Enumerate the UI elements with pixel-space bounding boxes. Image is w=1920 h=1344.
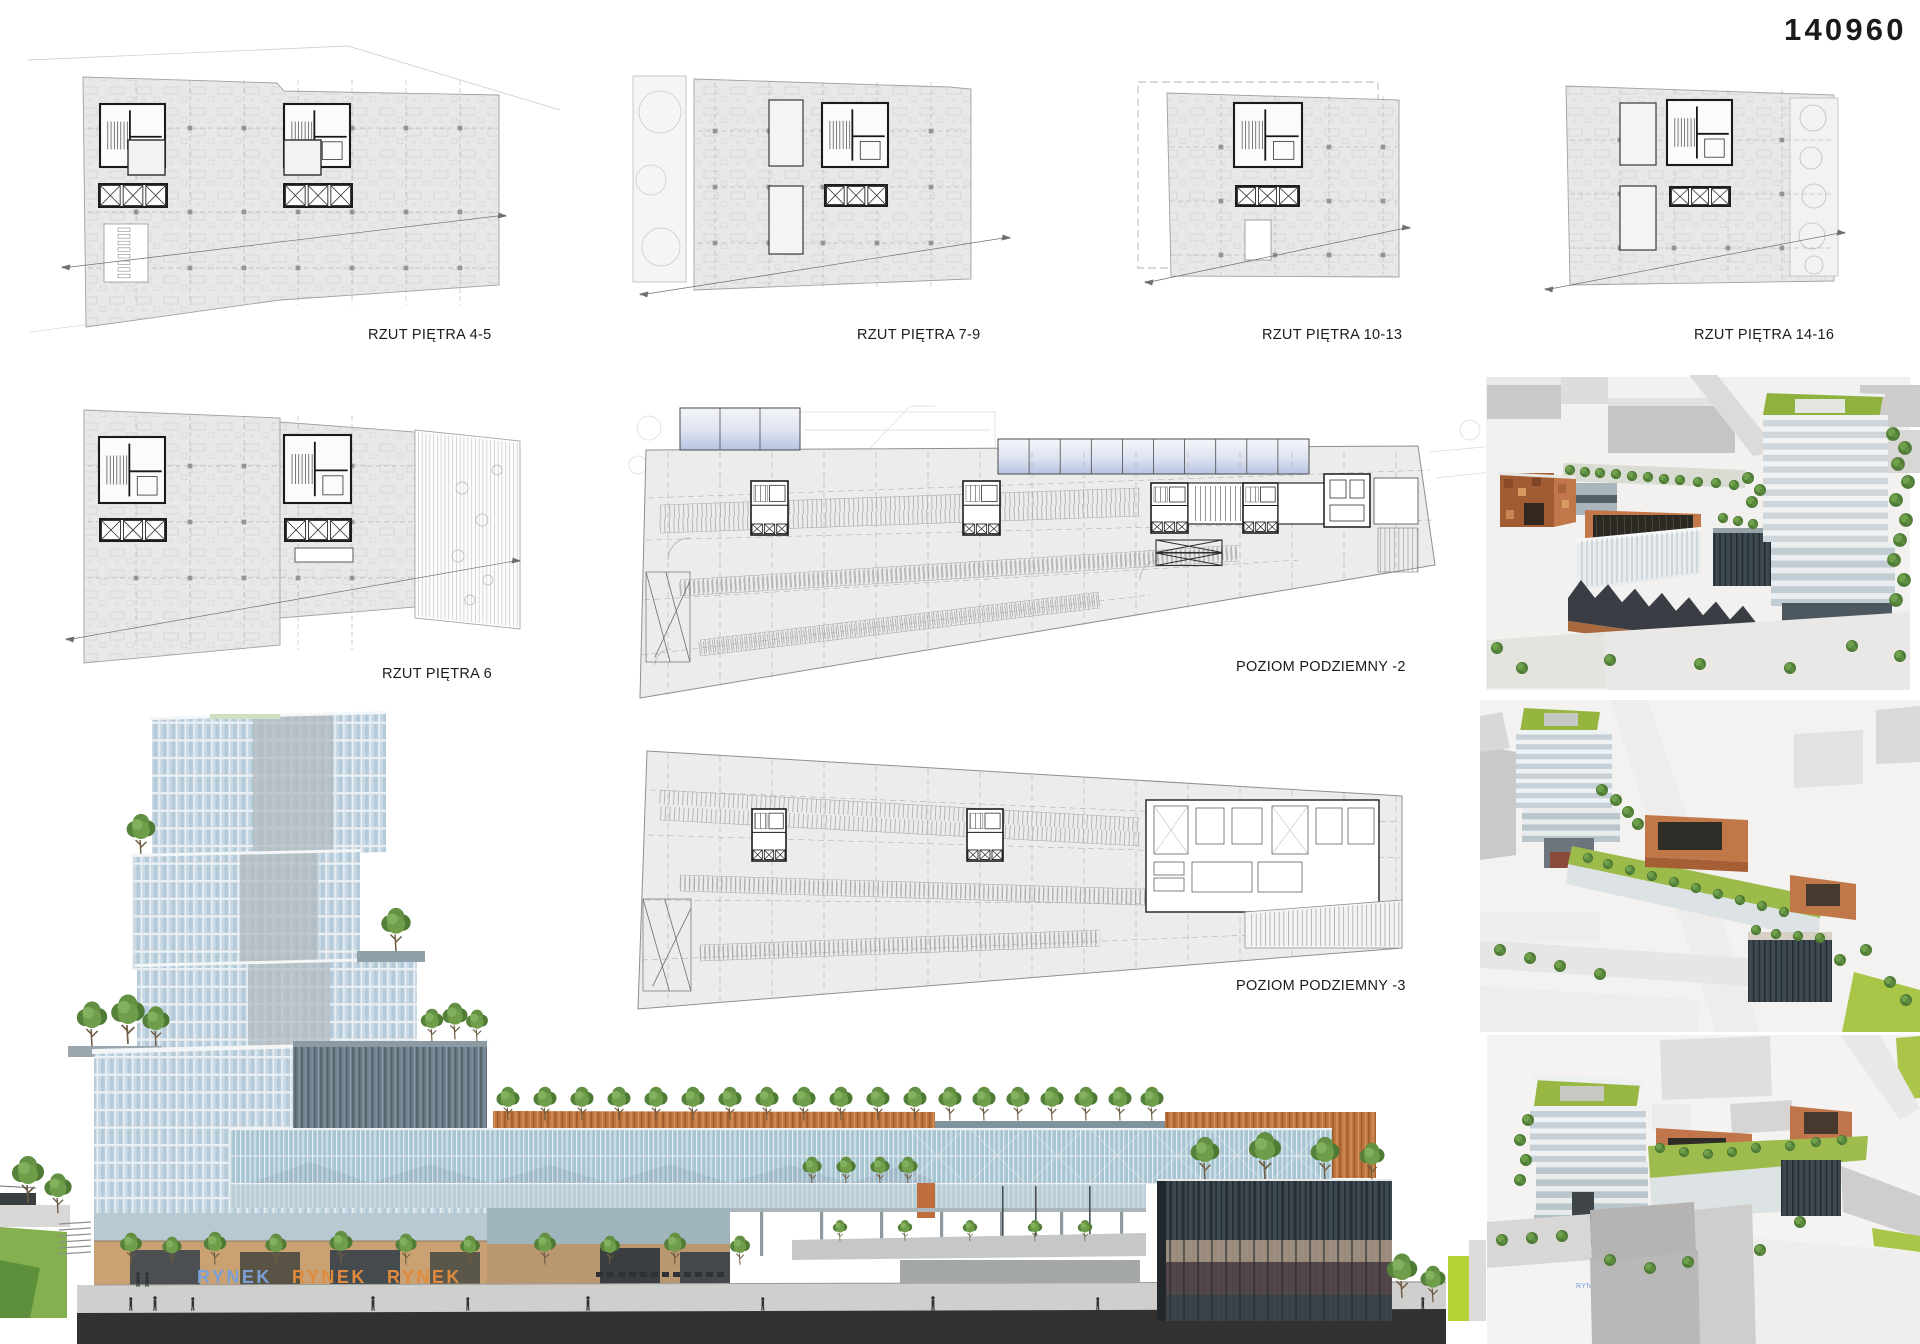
svg-text:RZUT PIĘTRA 7-9: RZUT PIĘTRA 7-9 — [857, 327, 980, 343]
svg-text:RYNEK: RYNEK — [197, 1267, 272, 1287]
svg-text:RZUT PIĘTRA 14-16: RZUT PIĘTRA 14-16 — [1694, 327, 1834, 343]
svg-text:POZIOM PODZIEMNY -2: POZIOM PODZIEMNY -2 — [1236, 659, 1406, 675]
svg-text:POZIOM PODZIEMNY -3: POZIOM PODZIEMNY -3 — [1236, 978, 1406, 994]
svg-text:RZUT PIĘTRA 6: RZUT PIĘTRA 6 — [382, 666, 492, 682]
svg-text:RZUT PIĘTRA 4-5: RZUT PIĘTRA 4-5 — [368, 327, 491, 343]
svg-text:RZUT PIĘTRA 10-13: RZUT PIĘTRA 10-13 — [1262, 327, 1402, 343]
svg-text:140960: 140960 — [1784, 12, 1907, 47]
